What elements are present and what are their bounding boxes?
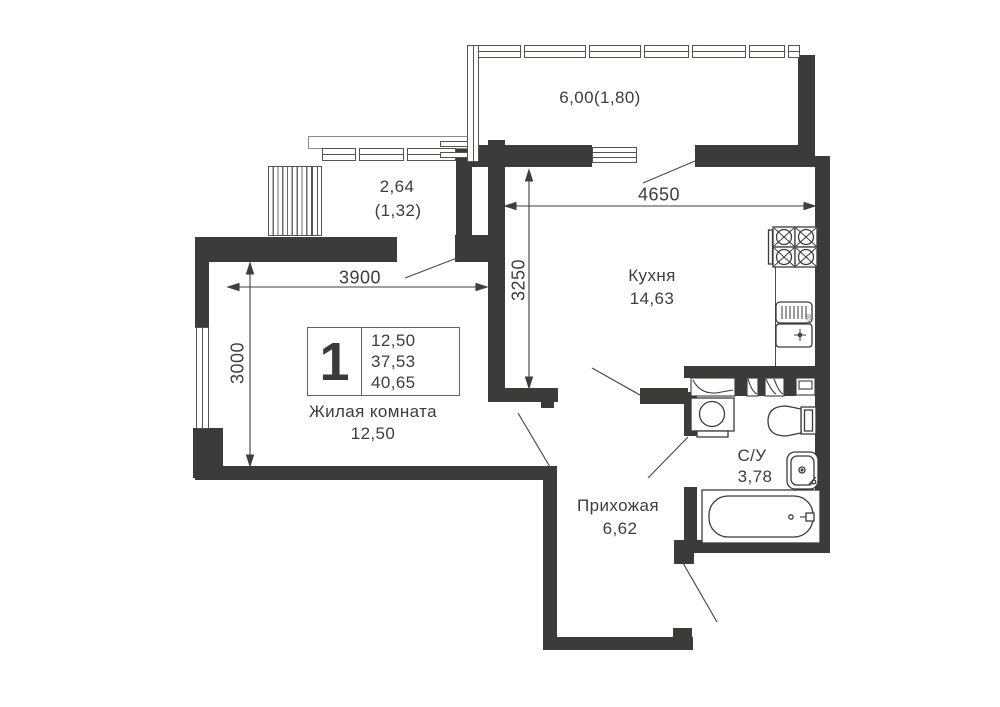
dimension-4650: 4650	[638, 185, 680, 206]
legend-total-area: 40,65	[371, 372, 459, 393]
legend-living-area: 12,50	[371, 330, 459, 351]
balcony-top-label: 6,00(1,80)	[559, 88, 641, 108]
dimension-3000: 3000	[228, 342, 249, 384]
kitchen-area: 14,63	[630, 289, 675, 309]
dimension-600: 600	[807, 314, 813, 324]
washing-machine-icon	[691, 398, 734, 437]
bathroom-label: С/У	[738, 446, 767, 466]
balcony-door-swing	[405, 258, 457, 278]
living-room-area: 12,50	[351, 424, 396, 444]
kitchen-label: Кухня	[628, 266, 676, 286]
bathroom-sink-icon	[787, 452, 818, 489]
balcony-left-label2: (1,32)	[375, 201, 422, 221]
kitchen-sink-icon	[776, 302, 812, 347]
living-room-label: Жилая комната	[309, 402, 437, 422]
entrance-door-swing	[683, 563, 717, 622]
bathtub-icon	[702, 490, 820, 543]
living-door-swing	[518, 413, 550, 467]
toilet-icon	[768, 406, 816, 436]
legend-reduced-area: 37,53	[371, 351, 459, 372]
plan-graphics	[0, 0, 1000, 707]
bathroom-area: 3,78	[738, 467, 773, 487]
rooms-count: 1	[308, 328, 362, 395]
dimension-3900: 3900	[339, 268, 381, 289]
hall-area: 6,62	[603, 519, 638, 539]
apartment-legend: 1 12,50 37,53 40,65	[307, 327, 460, 396]
hall-label: Прихожая	[577, 496, 659, 516]
bathroom-door-swing	[648, 437, 688, 478]
balcony-door-swing	[643, 161, 695, 183]
vent-shaft-icon	[691, 378, 815, 396]
balcony-left-label: 2,64	[380, 177, 415, 197]
stove-icon	[769, 227, 818, 267]
floor-plan: 6,00(1,80) 2,64 (1,32) 4650 3250 3900 30…	[0, 0, 1000, 707]
kitchen-door-swing	[592, 368, 640, 395]
dimension-3250: 3250	[509, 259, 530, 301]
